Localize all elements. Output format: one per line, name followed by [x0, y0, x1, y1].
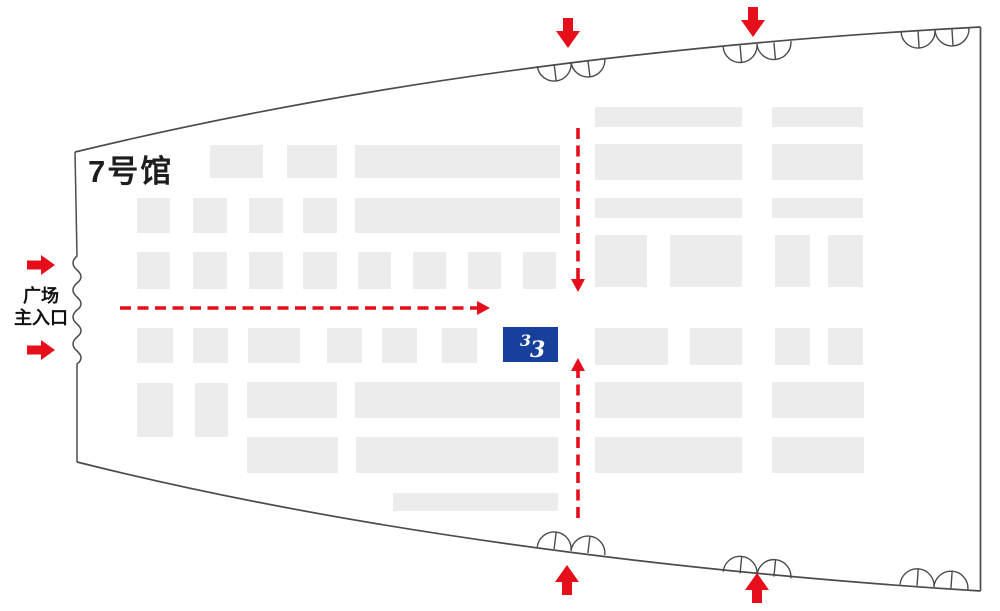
- route-arrowhead-icon: [571, 279, 585, 292]
- booth-block: [828, 235, 863, 287]
- route-from-main-entrance-horizontal: [120, 301, 490, 315]
- booth-block: [303, 198, 337, 233]
- booth-block: [595, 107, 742, 127]
- booth-block: [356, 437, 558, 473]
- booth-block: [670, 235, 742, 287]
- plaza-entrance-arrow-lower-icon: [27, 340, 55, 360]
- route-arrowhead-icon: [571, 358, 585, 371]
- plaza-main-entrance-label: 广场 主入口: [6, 285, 76, 329]
- booth-block: [195, 383, 228, 437]
- booth-block: [775, 328, 810, 365]
- booth-block: [595, 382, 742, 418]
- booth-block: [772, 198, 863, 218]
- hall-wall-bottom: [77, 462, 981, 591]
- route-arrowhead-icon: [477, 301, 490, 315]
- hall-title: 7号馆: [88, 146, 173, 191]
- booth-block: [137, 252, 170, 289]
- booth-block: [595, 235, 647, 287]
- booth-block: [355, 145, 560, 178]
- booth-block: [137, 198, 170, 233]
- booth-block: [775, 235, 810, 287]
- bottom-gate-arrow-left-icon: [555, 565, 579, 595]
- booth-block: [210, 145, 263, 178]
- top-gate-arrow-right-icon: [741, 7, 765, 37]
- plaza-entrance-arrow-upper-icon: [27, 255, 55, 275]
- door-swing-icon: [537, 530, 607, 555]
- booth-block: [442, 328, 477, 363]
- booth-block: [248, 328, 300, 363]
- booth-block: [193, 328, 228, 363]
- booth-block: [468, 252, 501, 289]
- booth-block: [287, 145, 337, 178]
- booth-block: [247, 437, 338, 473]
- booth-block: [355, 198, 560, 233]
- booth-block: [358, 252, 391, 289]
- booth-block: [772, 107, 863, 127]
- hall-map: 33 7号馆 广场 主入口: [0, 0, 1000, 611]
- booth-block: [137, 383, 173, 437]
- hall-map-canvas: 33: [0, 0, 1000, 611]
- booth-block: [193, 252, 227, 289]
- booth-block: [595, 328, 668, 365]
- bottom-gate-arrow-right-icon: [745, 573, 769, 603]
- booth-block: [393, 493, 558, 511]
- door-arc: [537, 58, 607, 83]
- booth-block: [523, 252, 556, 289]
- booth-block: [595, 437, 742, 473]
- booth-block: [690, 328, 742, 365]
- hall-wall-top: [75, 27, 981, 152]
- brand-logo-glyph: 3: [530, 337, 545, 363]
- door-leaf-line: [554, 532, 590, 553]
- booth-block: [772, 144, 863, 180]
- booth-block: [828, 328, 863, 365]
- booth-block: [355, 382, 560, 418]
- booth-block: [382, 328, 417, 363]
- entrance-label-line1: 广场: [6, 285, 76, 307]
- booth-block: [193, 198, 227, 233]
- booth-block: [249, 252, 283, 289]
- booth-block: [303, 252, 337, 289]
- booth-block: [772, 437, 864, 473]
- booth-block: [413, 252, 446, 289]
- route-from-bottom-gate-vertical: [571, 358, 585, 518]
- top-gate-arrow-left-icon: [556, 18, 580, 48]
- booth-block: [772, 382, 864, 418]
- booth-block: [249, 198, 283, 233]
- door-arc: [537, 530, 607, 555]
- route-from-top-gate-vertical: [571, 128, 585, 292]
- booth-block: [595, 144, 742, 180]
- door-swing-icon: [537, 58, 607, 83]
- booth-block: [595, 198, 742, 218]
- booth-block: [327, 328, 362, 363]
- booth-block: [247, 382, 337, 418]
- entrance-label-line2: 主入口: [6, 307, 76, 329]
- booth-block: [137, 328, 173, 363]
